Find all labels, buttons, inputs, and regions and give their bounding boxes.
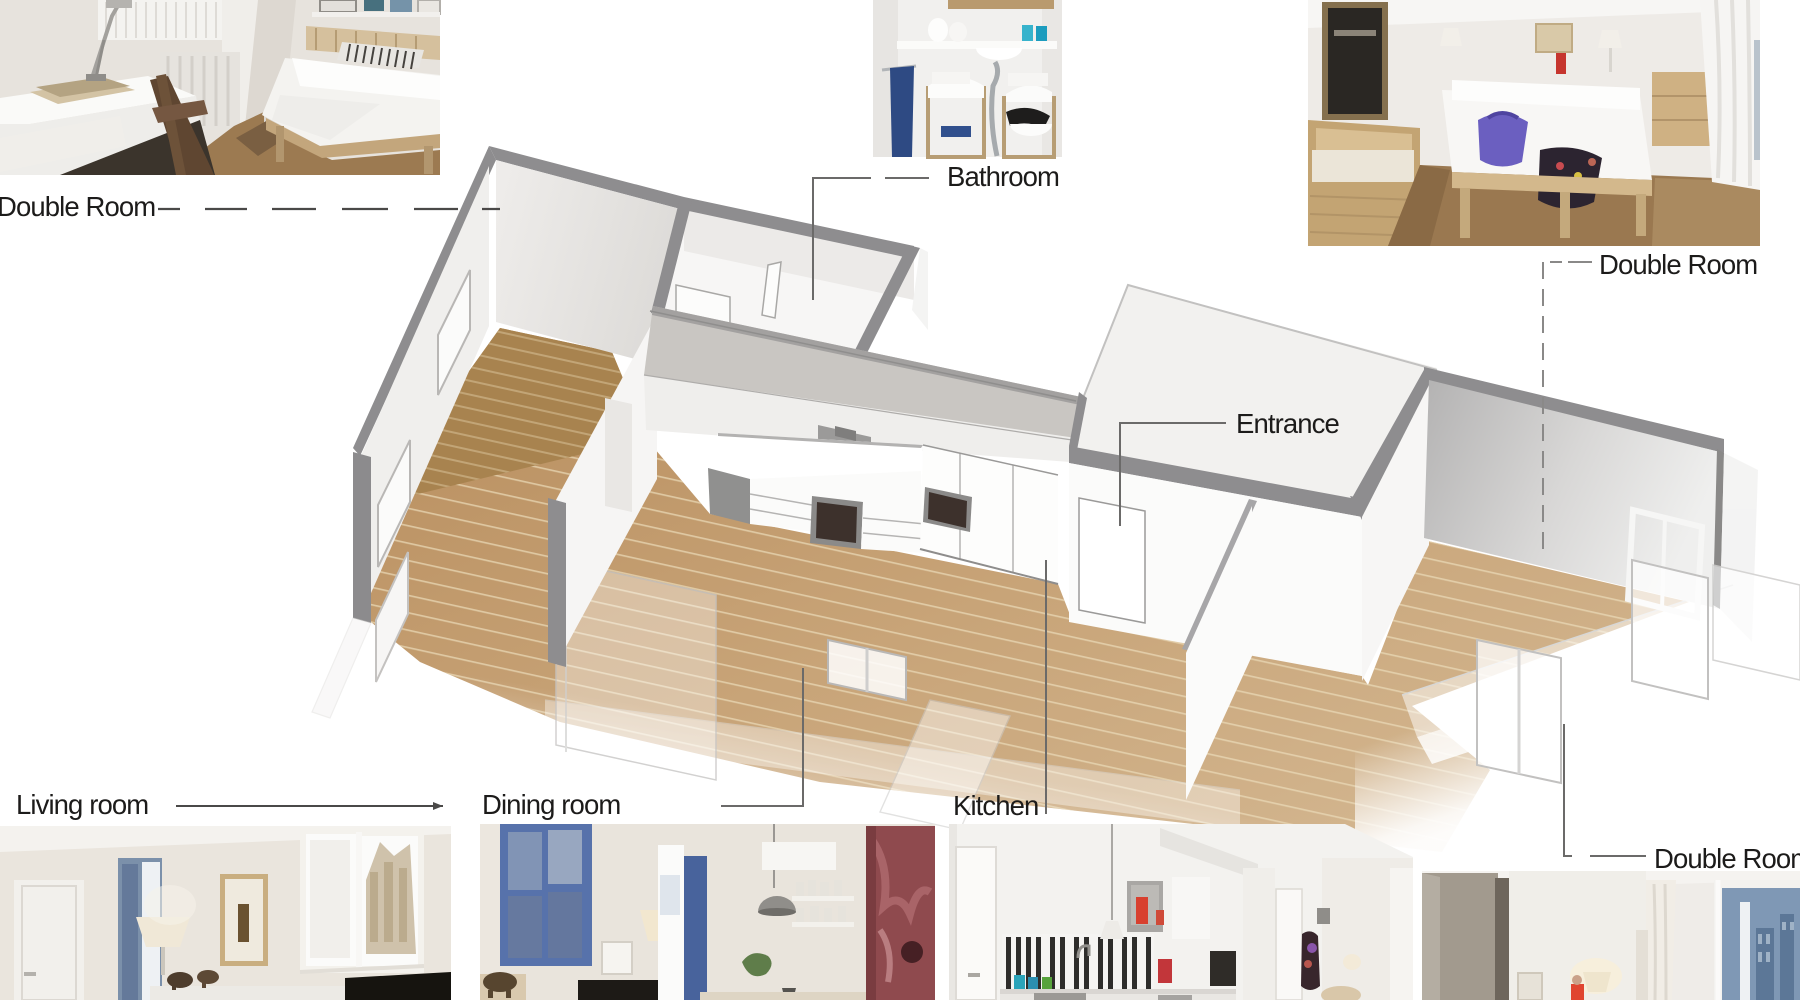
svg-text:Dining room: Dining room — [482, 789, 620, 820]
svg-text:Bathroom: Bathroom — [947, 161, 1059, 192]
svg-text:Double Room: Double Room — [1654, 843, 1800, 874]
svg-text:Double Room: Double Room — [0, 191, 155, 222]
svg-text:Entrance: Entrance — [1236, 408, 1339, 439]
svg-text:Double Room: Double Room — [1599, 249, 1757, 280]
svg-text:Kitchen: Kitchen — [953, 790, 1038, 821]
svg-text:Living room: Living room — [16, 789, 148, 820]
